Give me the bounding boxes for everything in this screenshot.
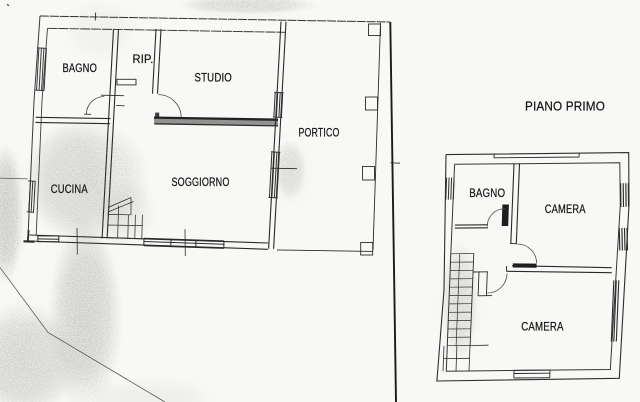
svg-text:CAMERA: CAMERA xyxy=(545,204,586,216)
svg-text:BAGNO: BAGNO xyxy=(63,63,98,75)
svg-text:CUCINA: CUCINA xyxy=(51,184,88,196)
svg-text:RIP.: RIP. xyxy=(133,54,154,66)
svg-text:SOGGIORNO: SOGGIORNO xyxy=(172,177,230,189)
svg-text:PORTICO: PORTICO xyxy=(299,128,340,140)
svg-text:PIANO PRIMO: PIANO PRIMO xyxy=(525,98,605,113)
svg-text:CAMERA: CAMERA xyxy=(521,321,564,333)
svg-text:BAGNO: BAGNO xyxy=(469,188,505,200)
svg-text:STUDIO: STUDIO xyxy=(195,72,233,84)
